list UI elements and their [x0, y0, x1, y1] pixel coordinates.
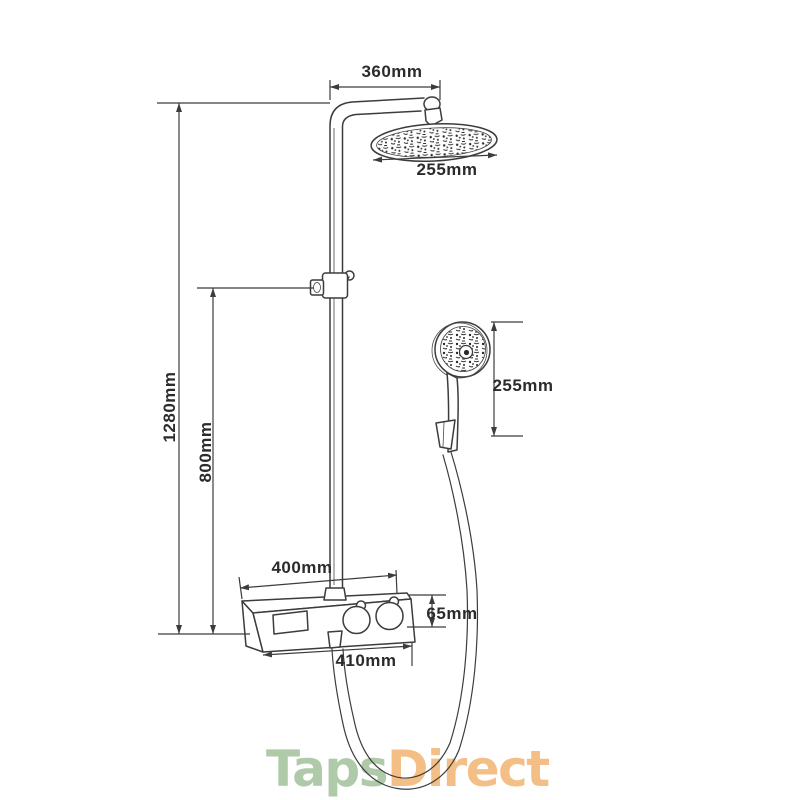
dimension-label-arm-projection: 360mm — [361, 62, 422, 82]
shower-dimension-diagram: TapsDirect — [0, 0, 800, 800]
dimension-label-valve-height: 65mm — [426, 604, 477, 624]
valve-body — [242, 588, 415, 652]
dimension-label-valve-bottom-width: 410mm — [335, 651, 396, 671]
riser-pipe — [330, 98, 424, 587]
temperature-knob — [343, 607, 370, 634]
dimension-label-total-height: 1280mm — [160, 371, 180, 442]
flow-knob — [376, 603, 403, 630]
hand-shower-holder — [436, 420, 455, 449]
pipe-collar — [324, 588, 346, 600]
dimension-label-rain-head-width: 255mm — [416, 160, 477, 180]
shower-arm-connector — [424, 97, 442, 126]
slider-bracket — [311, 271, 355, 298]
dimension-label-valve-top-width: 400mm — [271, 558, 332, 578]
dimension-label-hand-shower-height: 255mm — [492, 376, 553, 396]
dimension-label-rail-height: 800mm — [196, 421, 216, 482]
diagram-linework — [0, 0, 800, 800]
hose-outlet — [328, 631, 342, 648]
